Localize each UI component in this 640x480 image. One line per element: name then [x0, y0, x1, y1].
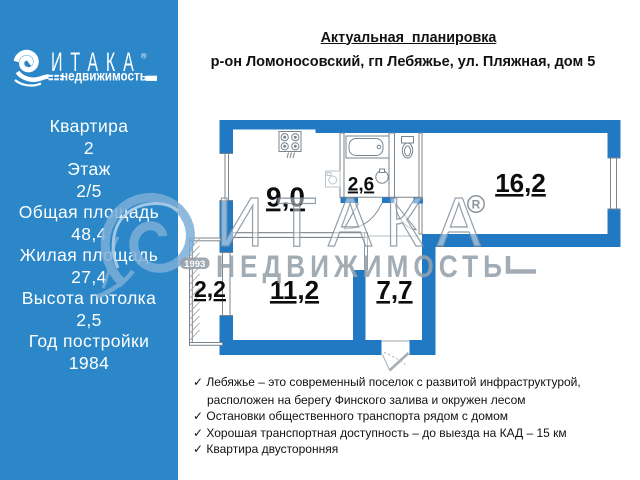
svg-text:1993: 1993 [184, 259, 205, 270]
svg-text:R: R [472, 198, 481, 212]
svg-text:®: ® [141, 52, 147, 61]
svg-text:НЕДВИЖИМОСТЬ: НЕДВИЖИМОСТЬ [216, 248, 507, 284]
svg-text:16,2: 16,2 [495, 168, 546, 198]
svg-text:недвижимость: недвижимость [61, 68, 147, 83]
